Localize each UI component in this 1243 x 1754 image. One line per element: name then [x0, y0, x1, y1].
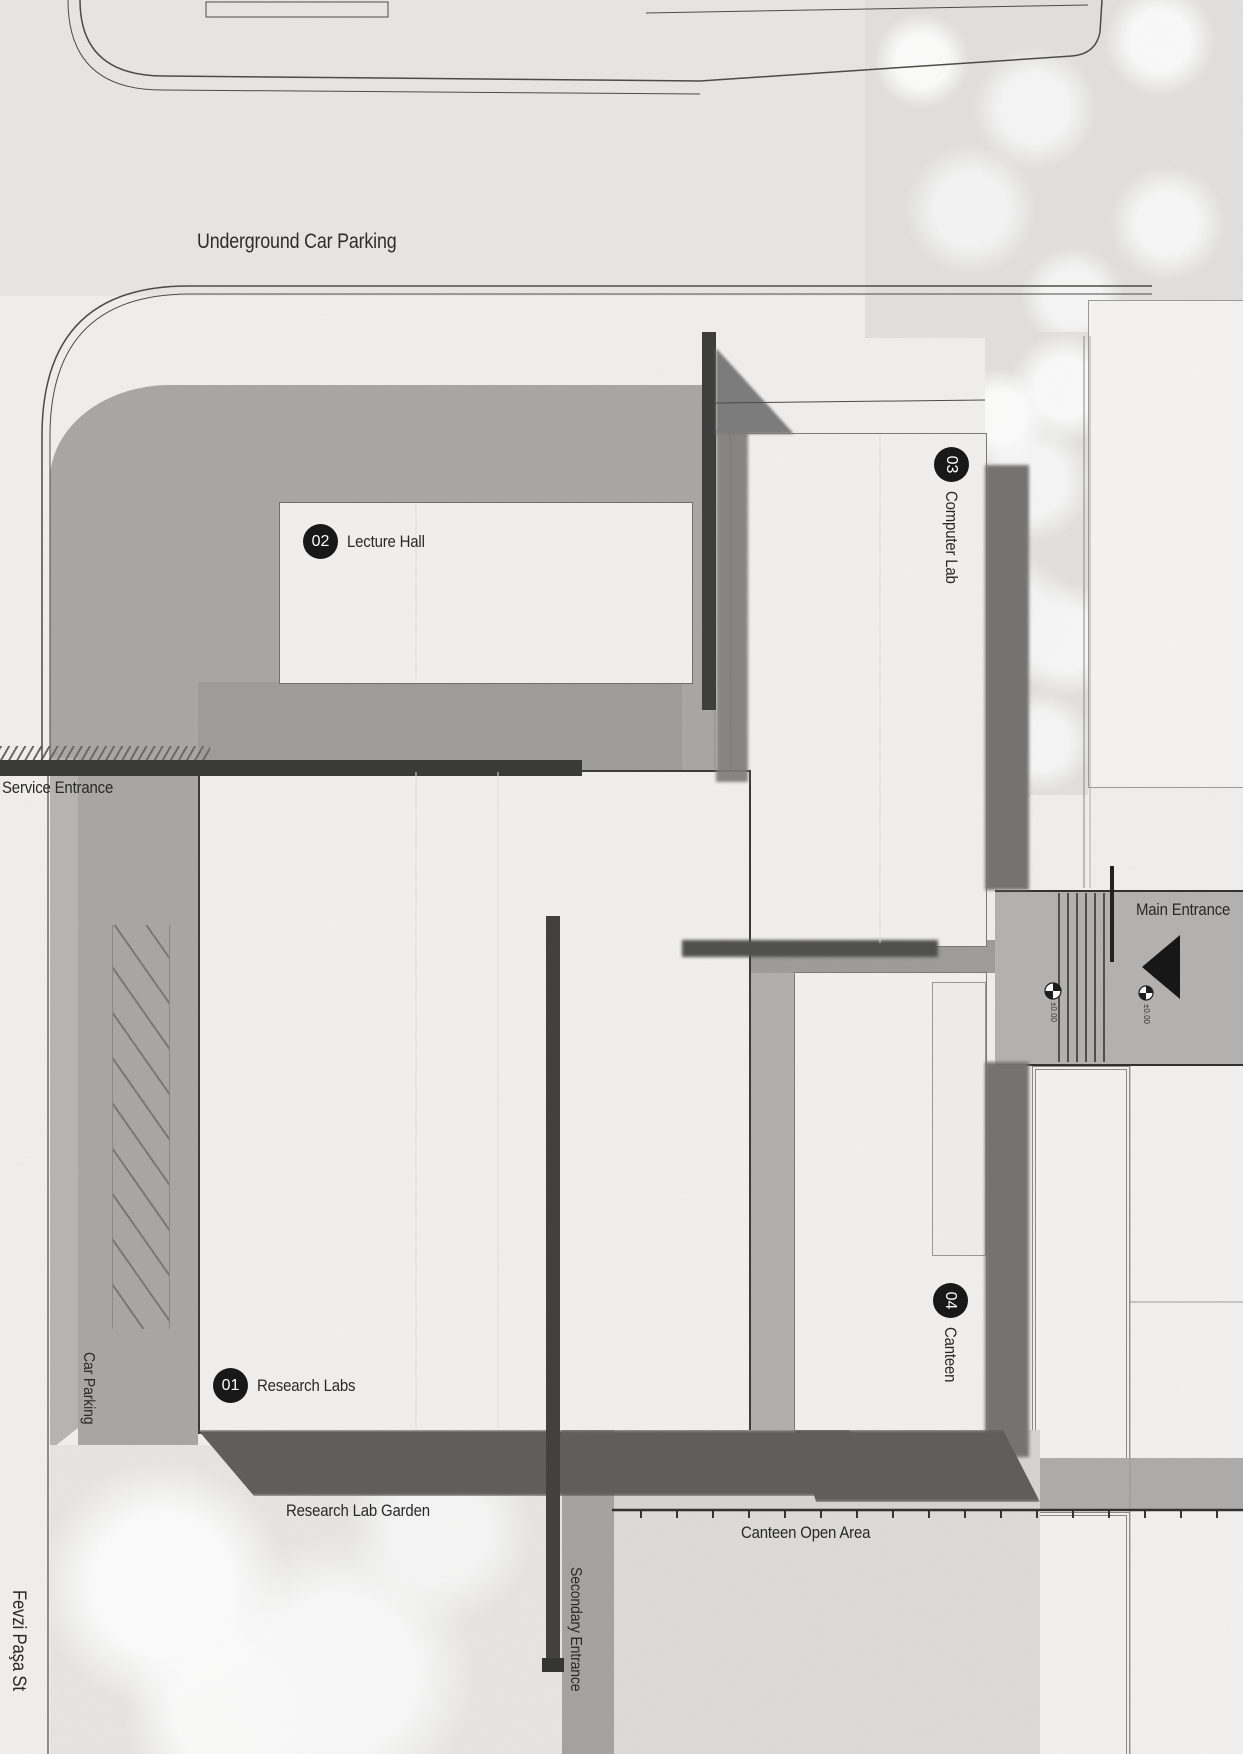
badge-01: 01 — [213, 1368, 248, 1403]
building-label-canteen: 04 Canteen — [933, 1283, 968, 1390]
building-name: Lecture Hall — [347, 532, 425, 552]
parking-stalls-hatch — [112, 925, 170, 1329]
wall-shadow — [716, 430, 748, 782]
label-main-entrance: Main Entrance — [1136, 900, 1230, 920]
site-wall-south — [546, 916, 560, 1672]
canteen-side-shadow — [985, 1062, 1029, 1457]
building-label-computer-lab: 03 Computer Lab — [934, 447, 969, 596]
label-street-fevzi-pasa: Fevzi Paşa St — [7, 1590, 29, 1691]
service-road-hatch — [0, 746, 210, 761]
planter-upper — [1032, 1066, 1130, 1464]
open-area-edge-ticks — [640, 1511, 1240, 1518]
computer-lab-shadow — [985, 465, 1029, 890]
main-entrance-arrow-icon — [1142, 935, 1180, 999]
badge-02: 02 — [303, 524, 338, 559]
trees-top-right — [865, 0, 1243, 338]
building-label-research-labs: 01 Research Labs — [213, 1368, 369, 1403]
label-canteen-open-area: Canteen Open Area — [741, 1523, 870, 1543]
building-name: Computer Lab — [942, 491, 962, 584]
area-label-underground-car-parking: Underground Car Parking — [197, 230, 396, 254]
canteen-terrace — [932, 982, 986, 1256]
wall-shadow-triangle — [716, 348, 794, 434]
badge-04: 04 — [933, 1283, 968, 1318]
building-name: Research Labs — [257, 1376, 355, 1396]
label-car-parking: Car Parking — [79, 1352, 97, 1424]
entry-forecourt — [1030, 795, 1243, 890]
site-wall-south-cap — [542, 1658, 564, 1672]
building-research-labs — [198, 770, 751, 1434]
level-marker-text: ±0.00 — [1049, 1002, 1058, 1022]
label-secondary-entrance: Secondary Entrance — [566, 1567, 584, 1691]
badge-03: 03 — [934, 447, 969, 482]
level-marker-text: ±0.00 — [1142, 1004, 1151, 1024]
canteen-bottom-shadow — [794, 1430, 1040, 1502]
entrance-stairs — [1058, 893, 1112, 1062]
east-court — [1130, 1066, 1243, 1754]
planter-lower — [1032, 1512, 1130, 1754]
label-research-lab-garden: Research Lab Garden — [286, 1501, 430, 1521]
car-parking-strip — [50, 758, 78, 1450]
service-road — [0, 760, 582, 776]
label-service-entrance: Service Entrance — [2, 778, 113, 798]
neighbor-building-right — [1088, 300, 1243, 788]
site-wall-north — [702, 332, 716, 710]
site-plan-canvas: Underground Car Parking Service Entrance… — [0, 0, 1243, 1754]
gap-shadow — [682, 940, 938, 957]
building-label-lecture-hall: 02 Lecture Hall — [303, 524, 435, 559]
building-name: Canteen — [941, 1327, 961, 1382]
canteen-open-area-lower — [612, 1512, 1040, 1754]
